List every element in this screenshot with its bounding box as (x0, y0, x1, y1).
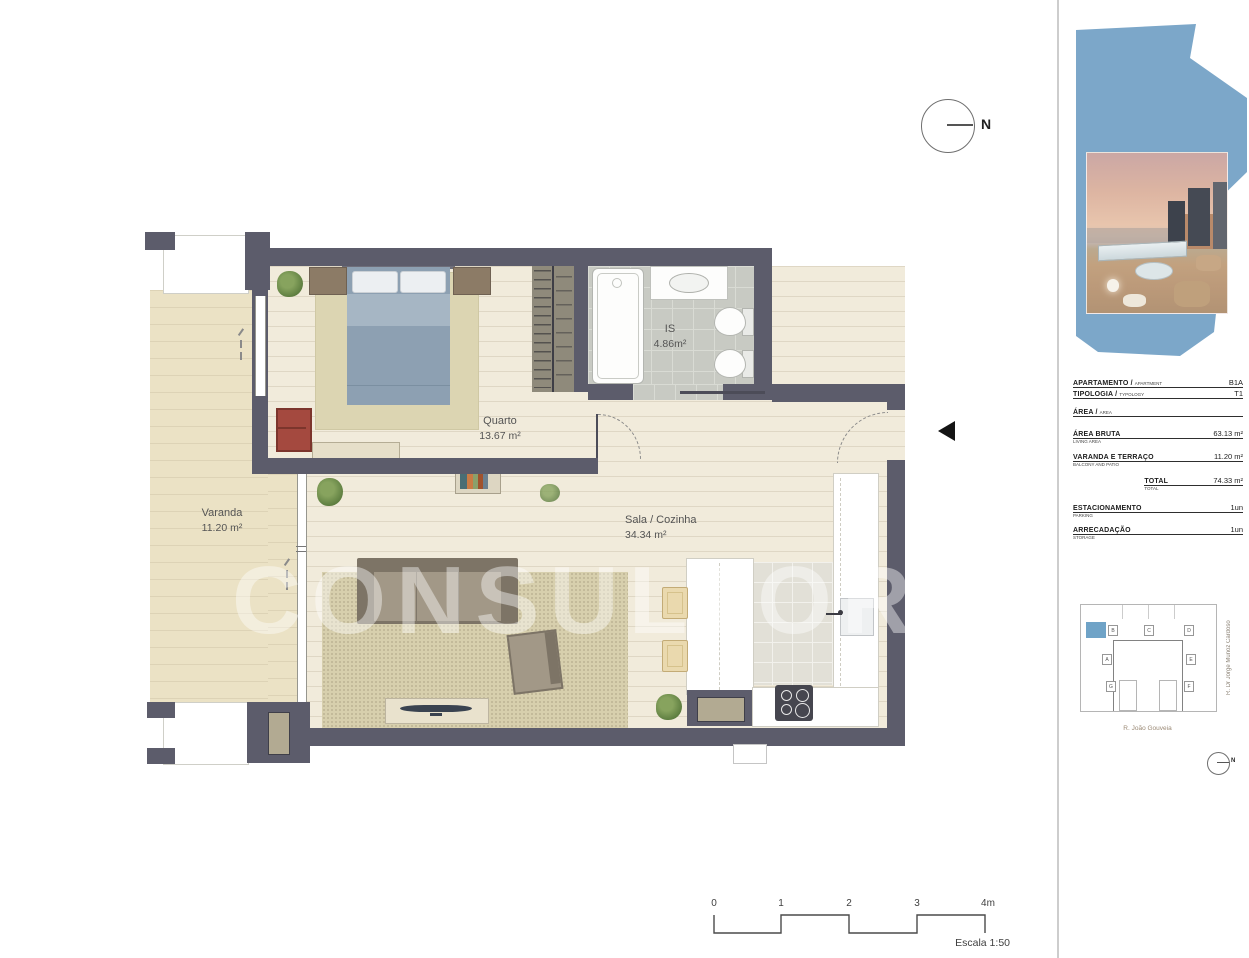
north-arrow-needle (947, 124, 973, 126)
terrace-bottom (163, 702, 249, 765)
north-label: N (981, 116, 991, 132)
door-leaf-bedroom (596, 414, 598, 458)
window-mullion (296, 546, 306, 547)
tv-console (385, 698, 489, 724)
wall-segment (145, 232, 175, 250)
wardrobe-hangers (534, 270, 551, 388)
info-row-estacionamento: ESTACIONAMENTO1un PARKING (1073, 503, 1243, 519)
room-label-is: IS 4.86m² (638, 322, 702, 351)
photo-tower (1168, 201, 1185, 246)
shaft-inset (268, 712, 290, 755)
keyplan-north-needle (1217, 762, 1229, 763)
keyplan-unit: E (1186, 654, 1196, 665)
sideboard-block (687, 690, 752, 726)
scale-tick: 4m (981, 898, 995, 909)
sofa (357, 558, 518, 624)
photo-spa (1135, 262, 1173, 280)
keyplan-unit: C (1144, 625, 1154, 636)
entrance-marker-icon (938, 421, 955, 441)
keyplan-north-label: N (1231, 758, 1235, 764)
photo-tower (1213, 182, 1227, 249)
wall-segment (147, 748, 175, 764)
wall-segment (887, 460, 905, 746)
scale-tick: 3 (914, 898, 920, 909)
duvet-fold (347, 385, 450, 386)
kitchen-counter-right (833, 473, 879, 696)
wall-vent (733, 744, 767, 764)
bed-sheet (347, 294, 450, 326)
window-annotation (240, 328, 242, 360)
wardrobe (532, 266, 574, 392)
wall-segment (252, 248, 772, 266)
wardrobe-rail (552, 266, 554, 392)
stool (662, 587, 688, 619)
bidet (714, 348, 754, 378)
floor-balcony-strip (268, 474, 297, 702)
photo-skyline (1087, 228, 1171, 242)
info-row-varanda-terraco: VARANDA E TERRAÇO11.20 m² BALCONY AND PA… (1073, 452, 1243, 468)
photo-tower (1188, 188, 1210, 246)
photo-pool (1098, 240, 1187, 261)
wall-segment (574, 266, 588, 392)
photo-table (1123, 294, 1145, 307)
tv (400, 705, 472, 712)
street-label-bottom: R. João Gouveia (1080, 725, 1215, 732)
building-photo (1086, 152, 1228, 314)
info-row-area-bruta: ÁREA BRUTA63.13 m² LIVING AREA (1073, 429, 1243, 445)
door-leaf-bathroom (680, 391, 765, 394)
keyplan-unit: G (1106, 681, 1116, 692)
sheet-divider (1057, 0, 1059, 958)
keyplan-north-icon (1207, 752, 1230, 775)
photo-lounge (1174, 281, 1210, 307)
wall-segment (754, 248, 772, 400)
wall-segment (772, 384, 905, 402)
info-row-arrecadacao: ARRECADAÇÃO1un STORAGE (1073, 525, 1243, 541)
bathroom-sink (650, 266, 728, 300)
pillow (400, 271, 446, 293)
wall-segment (588, 384, 633, 400)
scale-tick: 0 (711, 898, 717, 909)
room-label-varanda: Varanda 11.20 m² (175, 506, 269, 535)
pillow (352, 271, 398, 293)
stool (662, 640, 688, 672)
wall-segment (252, 458, 598, 474)
scale-tick: 2 (846, 898, 852, 909)
window-annotation (286, 558, 288, 590)
floor-balcony (150, 290, 268, 702)
info-row-apartamento: APARTAMENTO /APARTMENTB1A (1073, 378, 1243, 388)
kitchen-counter-bottom (752, 687, 879, 727)
toilet (714, 306, 754, 336)
keyplan-unit: B (1108, 625, 1118, 636)
room-label-quarto: Quarto 13.67 m² (440, 414, 560, 443)
red-chair (276, 408, 312, 452)
bathtub (592, 268, 644, 384)
keyplan-unit: D (1184, 625, 1194, 636)
info-row-total: TOTAL74.33 m² TOTAL (1144, 476, 1243, 492)
window-bedroom (255, 296, 266, 396)
armchair (507, 629, 564, 695)
terrace-top (163, 235, 249, 294)
floorplan-sheet: Quarto 13.67 m² IS 4.86m² Sala / Cozinha… (0, 0, 1249, 958)
nightstand (453, 267, 491, 295)
scale-label: Escala 1:50 (900, 937, 1010, 949)
photo-lounge (1196, 255, 1221, 271)
info-row-tipologia: TIPOLOGIA /TYPOLOGYT1 (1073, 389, 1243, 399)
stove (775, 685, 813, 721)
wardrobe-hangers (556, 276, 572, 384)
kitchen-island (686, 558, 754, 695)
nightstand (309, 267, 347, 295)
window-mullion (296, 551, 306, 552)
keyplan-unit: F (1184, 681, 1194, 692)
scale-tick: 1 (778, 898, 784, 909)
window-living (297, 474, 307, 702)
info-row-area: ÁREA /AREA (1073, 409, 1243, 417)
keyplan-courtyard (1113, 640, 1183, 711)
keyplan-highlighted-unit (1086, 622, 1106, 638)
keyplan-unit: A (1102, 654, 1112, 665)
wall-segment (887, 402, 905, 410)
photo-lamp (1107, 279, 1120, 292)
sofa-seat (374, 572, 501, 621)
bed (347, 267, 450, 405)
street-label-right: R. Dr Jorge Munoz Cardoso (1226, 600, 1232, 715)
wall-segment (300, 728, 905, 746)
north-arrow-icon (921, 99, 975, 153)
kitchen-sink (840, 598, 874, 636)
unit-info-table: APARTAMENTO /APARTMENTB1A TIPOLOGIA /TYP… (1073, 378, 1243, 541)
faucet-knob (838, 610, 843, 615)
room-label-sala: Sala / Cozinha 34.34 m² (625, 513, 755, 542)
wall-segment (147, 702, 175, 718)
floor-kitchen (752, 562, 834, 685)
